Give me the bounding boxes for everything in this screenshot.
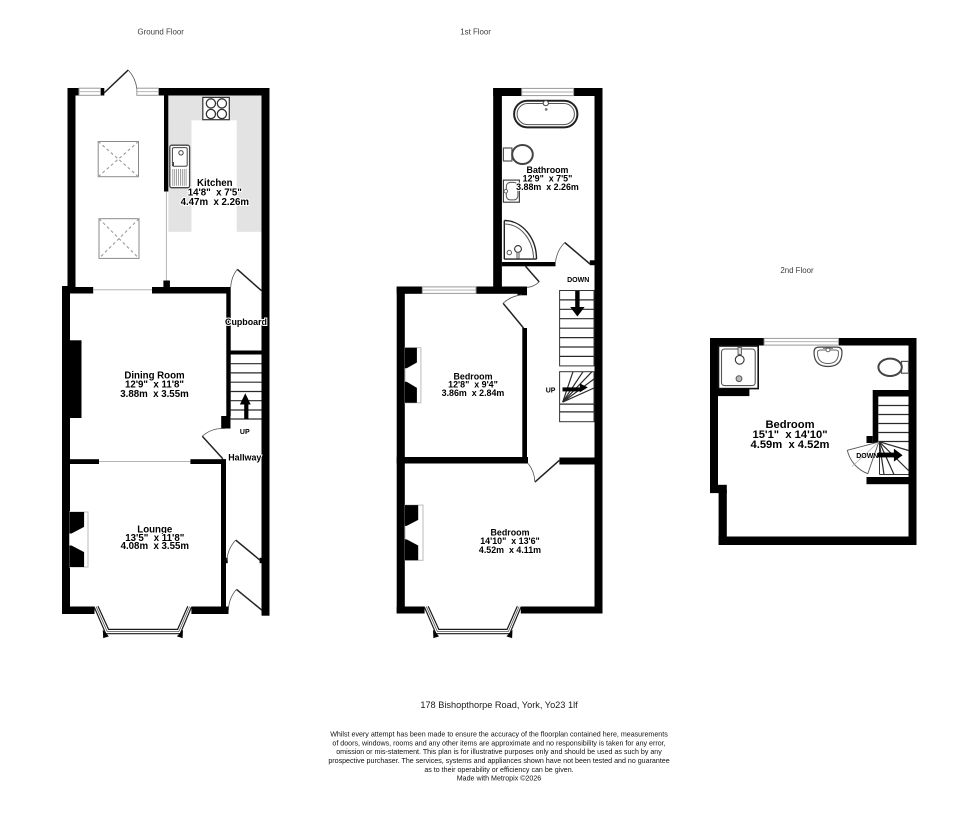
svg-text:UP: UP [240,429,250,436]
svg-text:omission or mis-statement. Thi: omission or mis-statement. This plan is … [336,748,662,756]
svg-text:of doors, windows, rooms and a: of doors, windows, rooms and any other i… [332,739,665,747]
svg-text:3.88m x 2.26m: 3.88m x 2.26m [516,182,579,192]
svg-text:1st Floor: 1st Floor [460,28,491,37]
svg-text:4.52m x 4.11m: 4.52m x 4.11m [479,545,541,555]
svg-text:UP: UP [546,387,556,394]
svg-text:4.08m x 3.55m: 4.08m x 3.55m [121,541,190,552]
svg-text:Made with Metropix ©2026: Made with Metropix ©2026 [457,775,542,783]
svg-text:DOWN: DOWN [856,453,878,460]
svg-text:Hallway: Hallway [228,453,261,463]
svg-text:Whilst every attempt has been: Whilst every attempt has been made to en… [330,731,668,739]
svg-text:DOWN: DOWN [567,277,589,284]
svg-text:Cupboard: Cupboard [225,317,267,327]
svg-text:3.88m x 3.55m: 3.88m x 3.55m [120,389,189,400]
svg-text:2nd Floor: 2nd Floor [780,266,814,275]
svg-text:4.59m x 4.52m: 4.59m x 4.52m [751,439,830,451]
svg-text:prospective purchaser. The ser: prospective purchaser. The services, sys… [328,757,669,765]
svg-text:as to their operability or eff: as to their operability or efficiency ca… [424,766,573,774]
svg-text:Ground Floor: Ground Floor [137,28,184,37]
svg-text:3.86m x 2.84m: 3.86m x 2.84m [442,388,505,398]
svg-text:4.47m x 2.26m: 4.47m x 2.26m [181,197,250,208]
svg-text:178 Bishopthorpe Road, York, Y: 178 Bishopthorpe Road, York, Yo23 1lf [420,700,578,710]
